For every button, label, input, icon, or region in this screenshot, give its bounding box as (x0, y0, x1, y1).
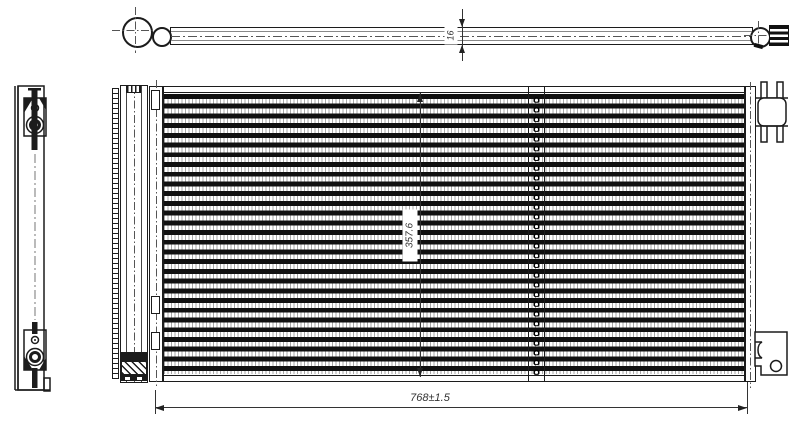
dim-width-arrow-left (155, 405, 164, 411)
dim-height-line (420, 93, 421, 377)
core (163, 86, 745, 382)
core-tubes-and-fins (164, 94, 744, 374)
dim-pipe-line (462, 9, 463, 61)
core-top-side-plate (164, 92, 744, 93)
dim-height-arrow-top (417, 93, 423, 102)
port-centerline-v (135, 7, 136, 53)
side-view (8, 78, 60, 394)
receiver-drier (120, 85, 148, 383)
pipe-port-circle-large (122, 17, 153, 48)
bracket-bottom-right (753, 330, 791, 380)
left-header-baffle-1 (151, 296, 160, 314)
pipe-fitting-block (769, 25, 789, 46)
pipe-port-circle-small (152, 27, 172, 47)
condenser-technical-drawing: 16 (0, 0, 800, 430)
center-support-column (528, 86, 545, 382)
right-header-centerline (750, 82, 751, 388)
center-column-dimples (529, 93, 544, 375)
bracket-bottom-hole (771, 361, 782, 372)
left-header-port (151, 90, 160, 110)
dim-core-height-label: 357.6 (403, 210, 418, 262)
bottom-step (44, 378, 50, 391)
drier-top-cap (126, 85, 141, 93)
dim-width-ext-right (747, 382, 748, 414)
dim-pipe-diameter-label: 16 (445, 27, 458, 45)
dim-height-arrow-bottom (417, 368, 423, 377)
bracket-top-right (755, 81, 789, 143)
drier-bottom-band (121, 352, 147, 361)
dim-width-arrow-right (738, 405, 747, 411)
left-header-baffle-2 (151, 332, 160, 350)
core-bottom-side-plate (164, 375, 744, 376)
dim-overall-width-label: 768±1.5 (375, 392, 485, 404)
bottom-stud (32, 368, 38, 388)
dim-pipe-arrow-bottom (459, 19, 465, 27)
drier-foot-band (121, 375, 147, 381)
drier-mount-strip (112, 88, 119, 379)
dim-width-line (155, 407, 747, 408)
bracket-top-body (758, 98, 786, 126)
dim-pipe-arrow-top (459, 45, 465, 53)
drier-desiccant-hatch (121, 361, 147, 375)
